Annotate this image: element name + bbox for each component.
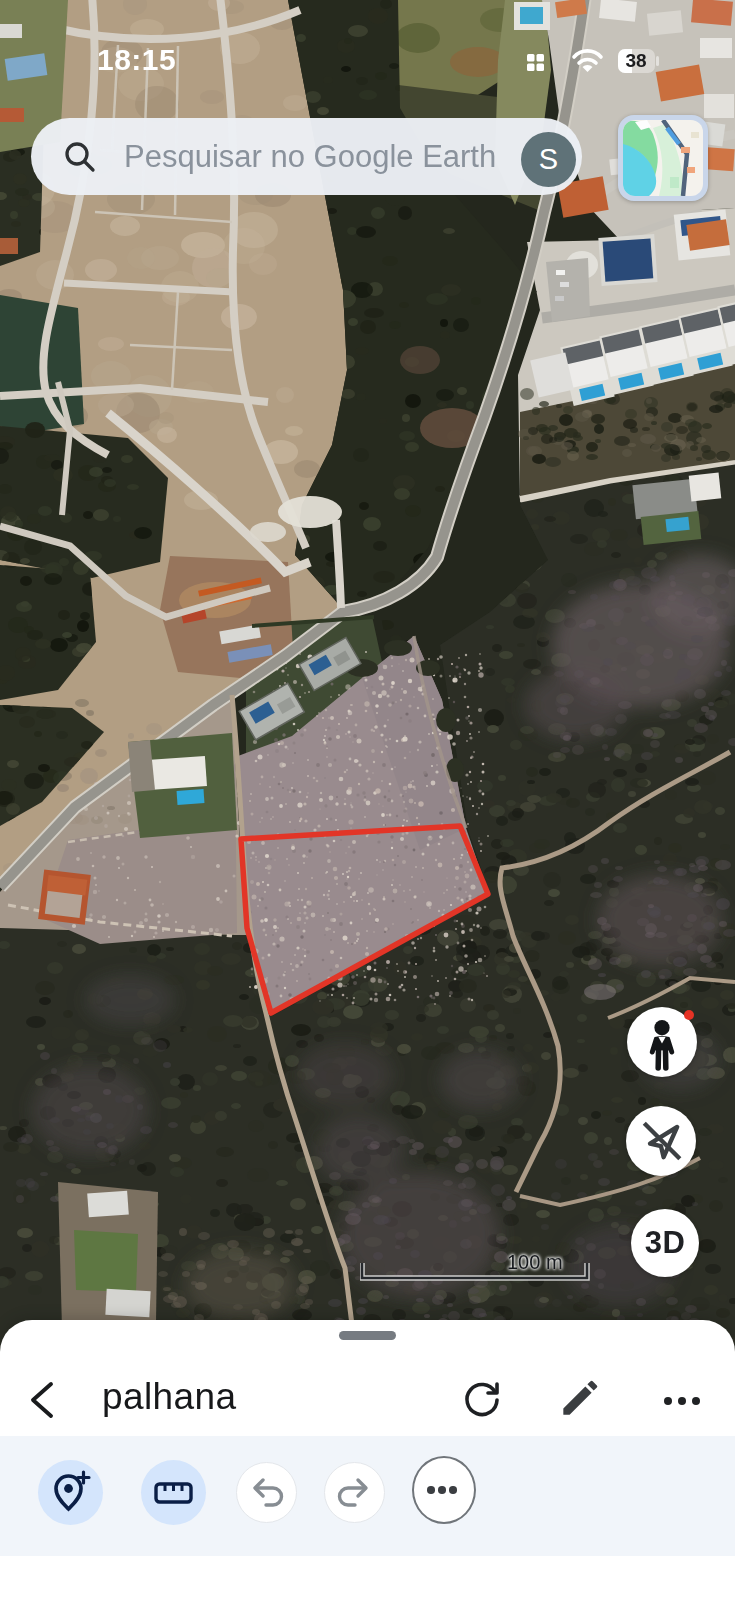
svg-text:38: 38 [625,50,646,71]
